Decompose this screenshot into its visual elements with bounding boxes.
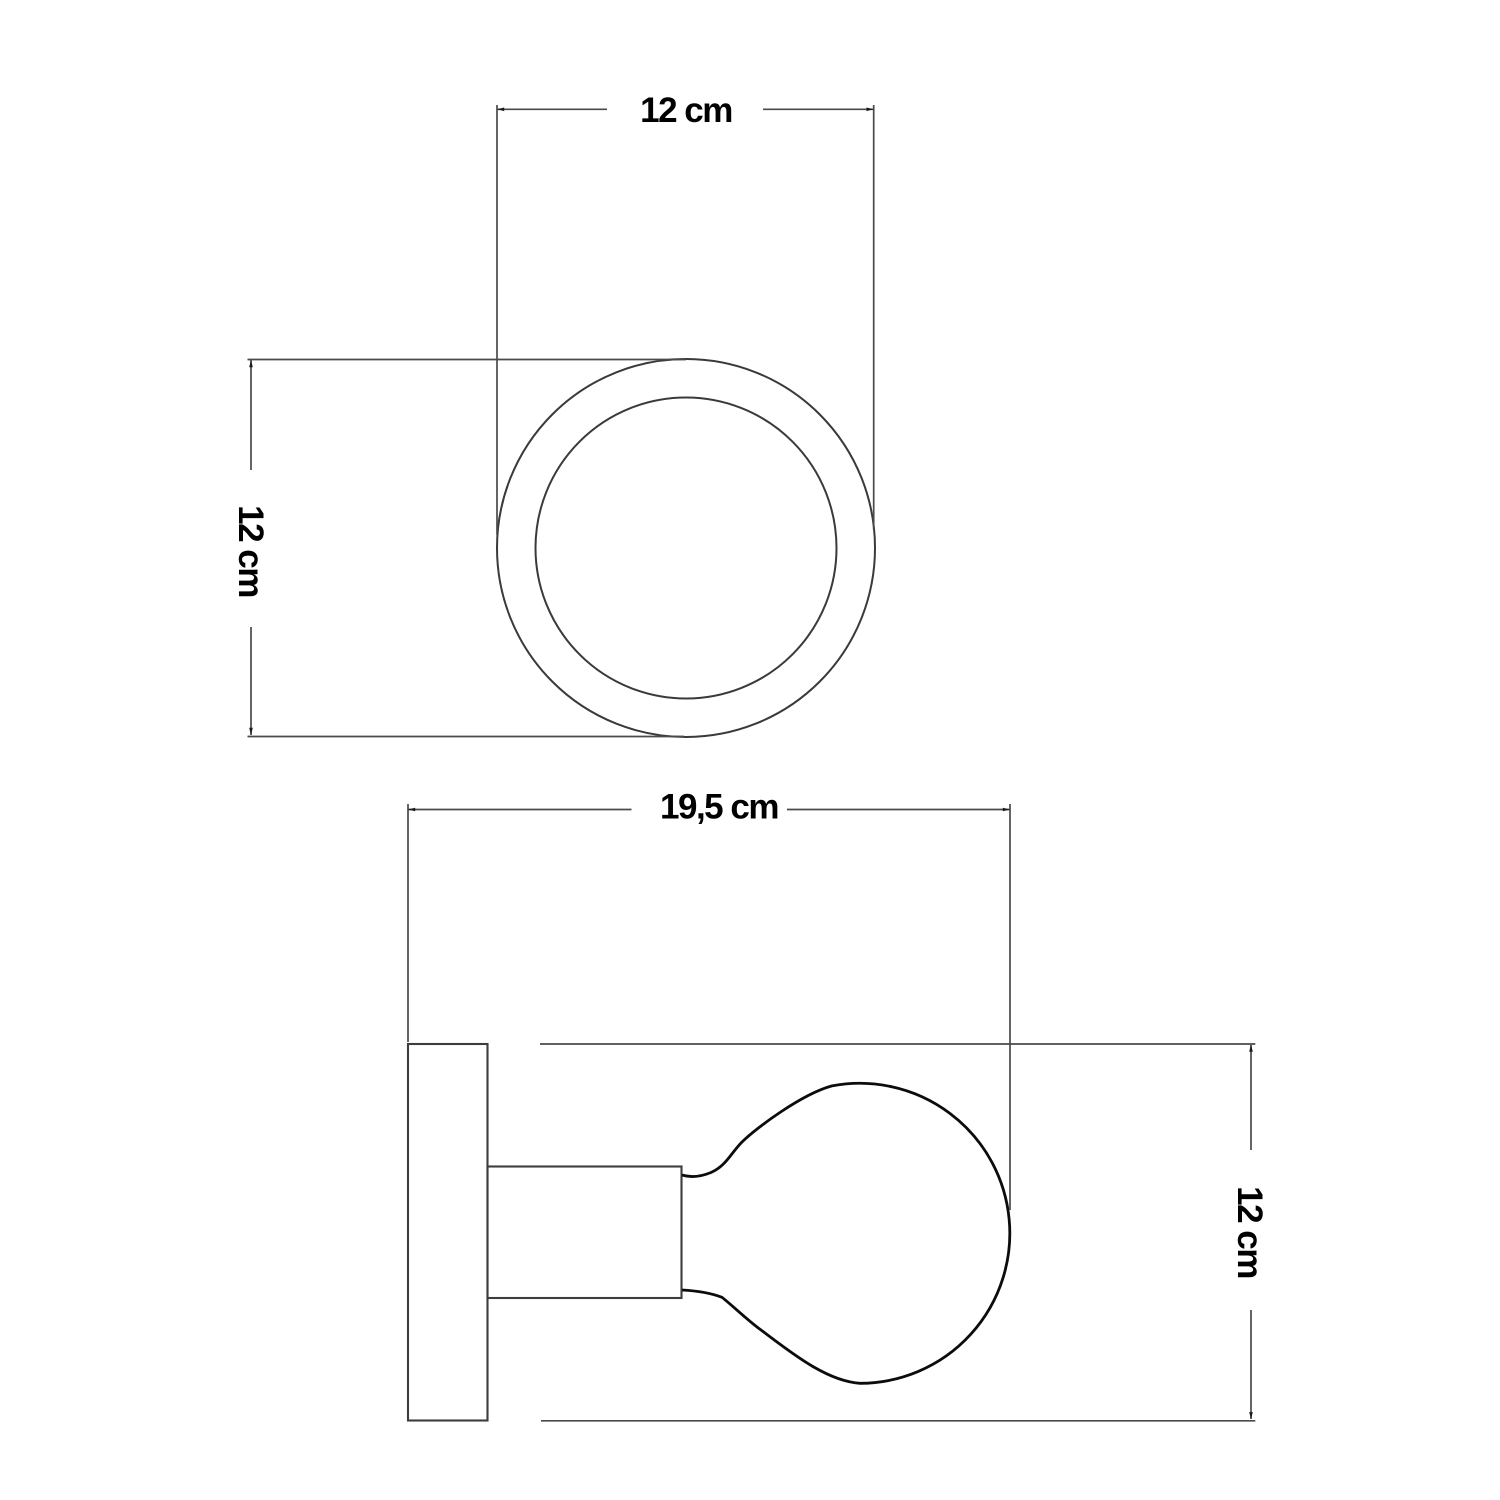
svg-text:12 cm: 12 cm — [231, 505, 270, 597]
svg-text:12 cm: 12 cm — [1230, 1186, 1269, 1278]
svg-text:19,5 cm: 19,5 cm — [660, 788, 778, 827]
svg-text:12 cm: 12 cm — [640, 91, 732, 130]
